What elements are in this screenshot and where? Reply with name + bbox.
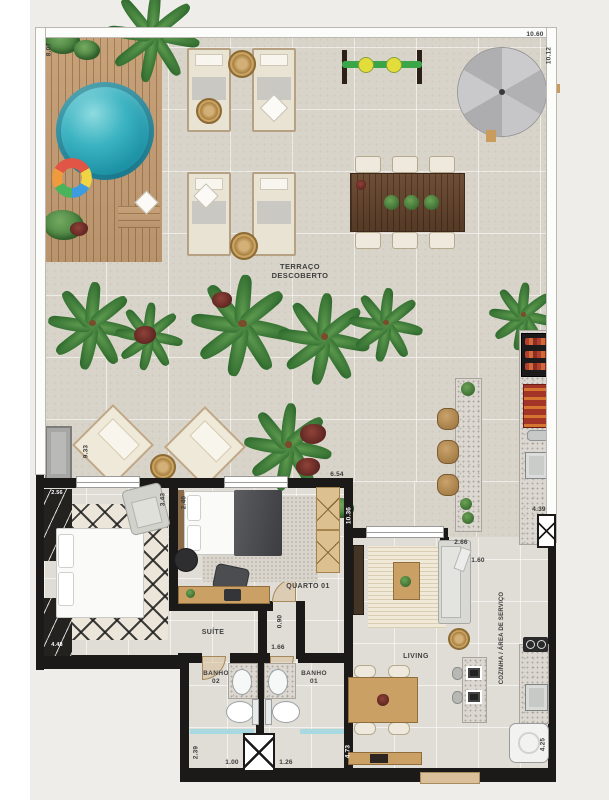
wall bbox=[548, 540, 556, 782]
outdoor-chair bbox=[392, 156, 418, 173]
dim-quarto-side: 2.40 bbox=[181, 491, 188, 515]
table-plant bbox=[404, 195, 419, 210]
dim-closet-top: 2.56 bbox=[46, 490, 68, 496]
terrace-parapet bbox=[36, 28, 45, 474]
dim-living-top: 2.66 bbox=[450, 539, 472, 546]
banho01-toilet-tank bbox=[265, 699, 272, 725]
terrace-label: TERRAÇO DESCOBERTO bbox=[252, 262, 348, 281]
dim-service: 4.25 bbox=[540, 733, 547, 757]
dim-deck-height: 8.07 bbox=[46, 38, 53, 62]
dining-chair bbox=[388, 722, 410, 735]
sideboard-decor bbox=[370, 754, 388, 763]
dim-mid-width: 6.54 bbox=[325, 471, 349, 478]
swing-seat bbox=[358, 57, 374, 73]
bed-pillow bbox=[58, 572, 74, 606]
tv-console bbox=[353, 545, 364, 615]
cooktop bbox=[523, 637, 548, 652]
terrace-label-line2: DESCOBERTO bbox=[252, 271, 348, 280]
dim-banho-depth: 2.39 bbox=[193, 741, 200, 765]
sun-hat bbox=[196, 98, 222, 124]
wall bbox=[36, 470, 44, 670]
quarto-label: QUARTO 01 bbox=[282, 583, 334, 592]
page-margin-left bbox=[0, 0, 30, 800]
counter-plant bbox=[461, 382, 475, 396]
side-table-tray bbox=[150, 454, 176, 480]
dining-chair bbox=[354, 722, 376, 735]
banho01-toilet bbox=[272, 701, 300, 723]
sofa bbox=[438, 540, 471, 624]
banho02-toilet bbox=[226, 701, 254, 723]
suite-label: SUÍTE bbox=[196, 629, 230, 638]
quarto-wardrobe bbox=[316, 530, 340, 573]
dim-hall: 1.66 bbox=[267, 644, 289, 651]
wall bbox=[296, 601, 305, 659]
deck-bush bbox=[74, 40, 100, 60]
banho01-label: BANHO 01 bbox=[294, 670, 334, 686]
parasol bbox=[458, 48, 546, 136]
dim-suite-side: 3.43 bbox=[160, 488, 167, 512]
entry-door bbox=[420, 772, 480, 784]
swing-seat bbox=[386, 57, 402, 73]
dim-kitchen-passage: 1.60 bbox=[468, 557, 488, 564]
sun-lounger bbox=[252, 172, 296, 256]
floor-plan-canvas: TERRAÇO DESCOBERTO QUARTO 01 SUÍTE LIVIN… bbox=[0, 0, 609, 800]
dim-corridor: 0.90 bbox=[277, 610, 284, 634]
hedge-palm bbox=[352, 292, 420, 352]
side-table-tray bbox=[228, 50, 256, 78]
counter-plant bbox=[460, 498, 472, 510]
counter-appliance bbox=[525, 452, 548, 479]
bed-pillow bbox=[187, 525, 201, 551]
beverage-cart bbox=[523, 384, 550, 428]
parasol-arm bbox=[486, 130, 496, 142]
dim-mid-height: 9.33 bbox=[83, 440, 90, 464]
outdoor-bench bbox=[45, 426, 72, 480]
place-setting bbox=[466, 666, 482, 680]
deck-steps bbox=[118, 206, 160, 228]
dim-terrace-height: 10.12 bbox=[546, 43, 553, 69]
banho02-label: BANHO 02 bbox=[196, 670, 236, 686]
coffee-table-plant bbox=[400, 576, 411, 587]
bar-stool bbox=[437, 440, 459, 464]
sun-lounger bbox=[187, 172, 231, 256]
desk-plant bbox=[186, 589, 195, 598]
dim-banho02-width: 1.00 bbox=[222, 759, 242, 766]
wall bbox=[258, 611, 267, 659]
outdoor-chair bbox=[429, 156, 455, 173]
kitchen-sink bbox=[525, 684, 548, 711]
outdoor-chair bbox=[429, 232, 455, 249]
outdoor-chair bbox=[355, 156, 381, 173]
swing-bar bbox=[342, 61, 422, 68]
bed-pillow bbox=[187, 495, 201, 521]
laptop bbox=[224, 589, 241, 601]
bed-blanket bbox=[234, 490, 282, 556]
place-setting bbox=[466, 690, 482, 704]
counter-stool bbox=[452, 691, 463, 704]
side-table-tray bbox=[230, 232, 258, 260]
banho02-toilet-tank bbox=[252, 699, 259, 725]
dim-living-side-bottom: 4.73 bbox=[345, 740, 352, 764]
dim-gourmet: 4.39 bbox=[528, 506, 550, 513]
terrace-label-line1: TERRAÇO bbox=[252, 262, 348, 271]
terrace-parapet bbox=[36, 28, 556, 37]
cozinha-label: COZINHA / ÁREA DE SERVIÇO bbox=[499, 588, 505, 688]
bar-stool bbox=[437, 474, 459, 496]
counter-plant bbox=[462, 512, 474, 524]
side-table bbox=[448, 628, 470, 650]
quarto-wardrobe bbox=[316, 487, 340, 530]
duct-shaft bbox=[243, 733, 275, 772]
shower-screen bbox=[300, 729, 344, 734]
counter-stool bbox=[452, 667, 463, 680]
hedge-palm bbox=[196, 284, 288, 362]
wall bbox=[180, 653, 189, 780]
window bbox=[366, 526, 444, 538]
wall bbox=[36, 655, 186, 669]
table-plant bbox=[384, 195, 399, 210]
dim-terrace-width: 10.60 bbox=[522, 31, 548, 38]
pool-float bbox=[52, 158, 92, 198]
bar-stool bbox=[437, 408, 459, 430]
outdoor-chair bbox=[355, 232, 381, 249]
outdoor-sink bbox=[527, 430, 549, 441]
banho01-sink bbox=[268, 669, 288, 695]
wall bbox=[230, 653, 270, 663]
terrace-parapet bbox=[547, 28, 556, 542]
nightstand bbox=[174, 548, 198, 572]
window bbox=[76, 476, 140, 488]
outdoor-chair bbox=[392, 232, 418, 249]
bed-pillow bbox=[58, 534, 74, 568]
dim-living-side-top: 10.36 bbox=[346, 503, 353, 529]
window bbox=[224, 476, 288, 488]
table-plant bbox=[424, 195, 439, 210]
dim-closet-bottom: 4.48 bbox=[46, 642, 68, 648]
wall bbox=[169, 487, 178, 605]
dim-banho01-width: 1.26 bbox=[276, 759, 296, 766]
duct-shaft bbox=[537, 514, 556, 548]
living-label: LIVING bbox=[398, 653, 434, 662]
